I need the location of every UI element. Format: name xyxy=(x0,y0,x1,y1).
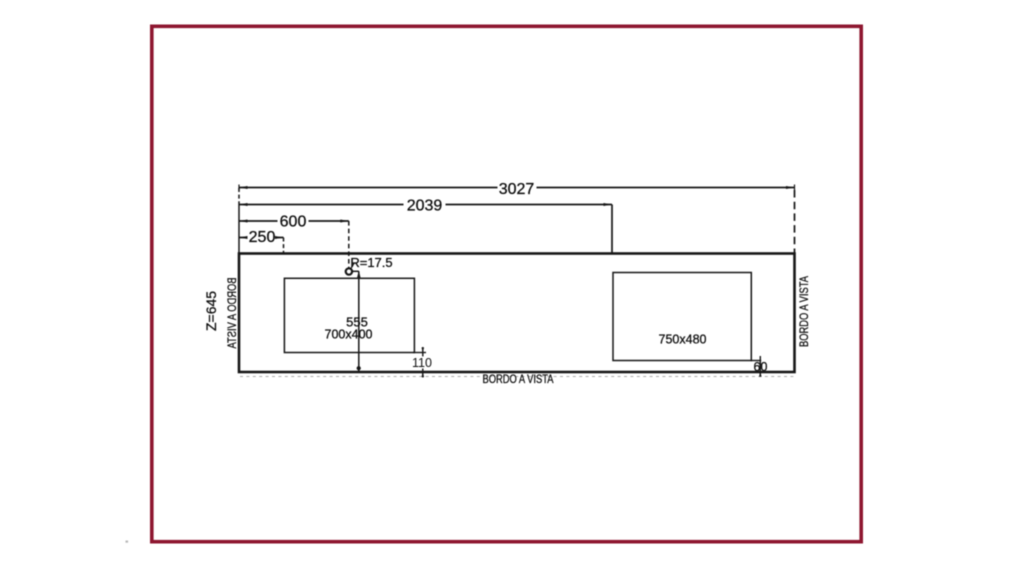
svg-text:110: 110 xyxy=(412,356,432,370)
svg-text:700x400: 700x400 xyxy=(325,328,373,342)
svg-text:2039: 2039 xyxy=(407,198,443,215)
svg-text:600: 600 xyxy=(280,214,307,231)
svg-text:750x480: 750x480 xyxy=(659,333,707,347)
svg-text:R=17.5: R=17.5 xyxy=(350,255,392,270)
svg-text:Z=645: Z=645 xyxy=(204,291,219,331)
svg-text:BORDO A VISTA: BORDO A VISTA xyxy=(225,278,239,349)
svg-text:3027: 3027 xyxy=(499,181,535,198)
svg-text:BORDO A VISTA: BORDO A VISTA xyxy=(483,374,554,386)
svg-text:BORDO A VISTA: BORDO A VISTA xyxy=(797,276,811,347)
svg-text:250: 250 xyxy=(249,229,276,246)
svg-text:60: 60 xyxy=(754,360,768,374)
